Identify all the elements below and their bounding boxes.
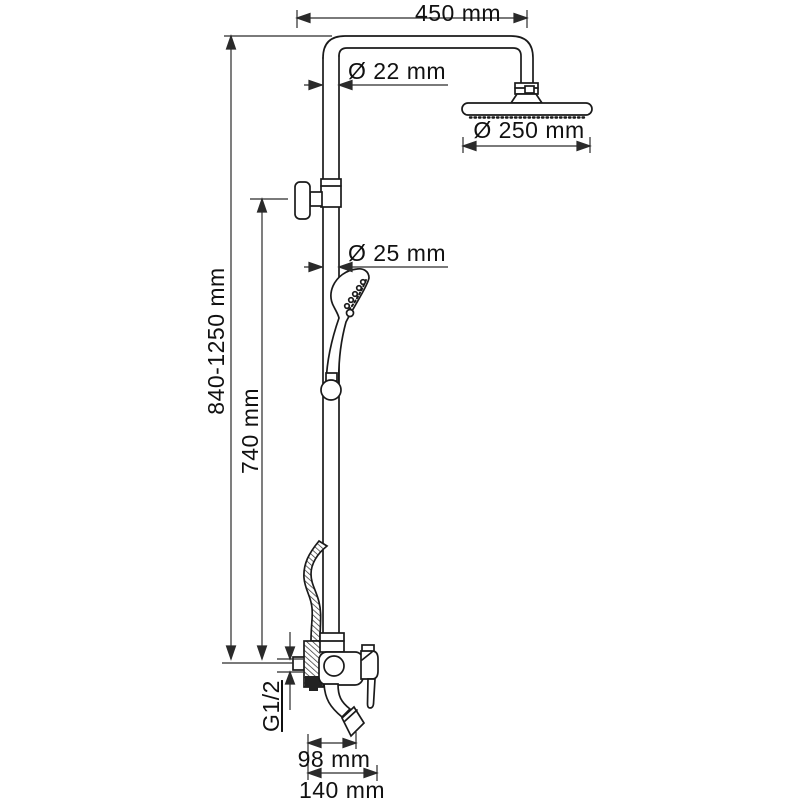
mixer-lever bbox=[368, 679, 376, 708]
dim-spout-reach-label: 98 mm bbox=[284, 746, 384, 772]
head-cone bbox=[511, 94, 542, 103]
drawing-linework bbox=[0, 0, 800, 800]
mixer-collar bbox=[320, 633, 344, 652]
overhead-shower-head bbox=[462, 83, 592, 118]
hand-shower-ring bbox=[347, 310, 354, 317]
dim-total-height-label: 840-1250 mm bbox=[203, 256, 229, 426]
dim-head-diameter-label: Ø 250 mm bbox=[466, 117, 592, 143]
bracket-knob bbox=[295, 182, 310, 219]
dim-thread-label: G1/2 bbox=[258, 671, 284, 741]
technical-drawing: 450 mm Ø 22 mm Ø 250 mm Ø 25 mm 840-1250… bbox=[0, 0, 800, 800]
head-disc bbox=[462, 103, 592, 115]
wall-bracket bbox=[295, 179, 341, 219]
hand-shower bbox=[326, 269, 369, 388]
diverter-knob bbox=[324, 656, 344, 676]
dim-total-height bbox=[222, 36, 332, 663]
dim-rail-height-label: 740 mm bbox=[237, 376, 263, 486]
dim-top-width-label: 450 mm bbox=[388, 0, 528, 26]
dim-pipe-diameter-label: Ø 22 mm bbox=[342, 58, 452, 84]
handle-base bbox=[361, 651, 378, 679]
dim-rail-diameter-label: Ø 25 mm bbox=[342, 240, 452, 266]
spout bbox=[324, 684, 364, 736]
dim-spout-total-label: 140 mm bbox=[278, 777, 406, 800]
